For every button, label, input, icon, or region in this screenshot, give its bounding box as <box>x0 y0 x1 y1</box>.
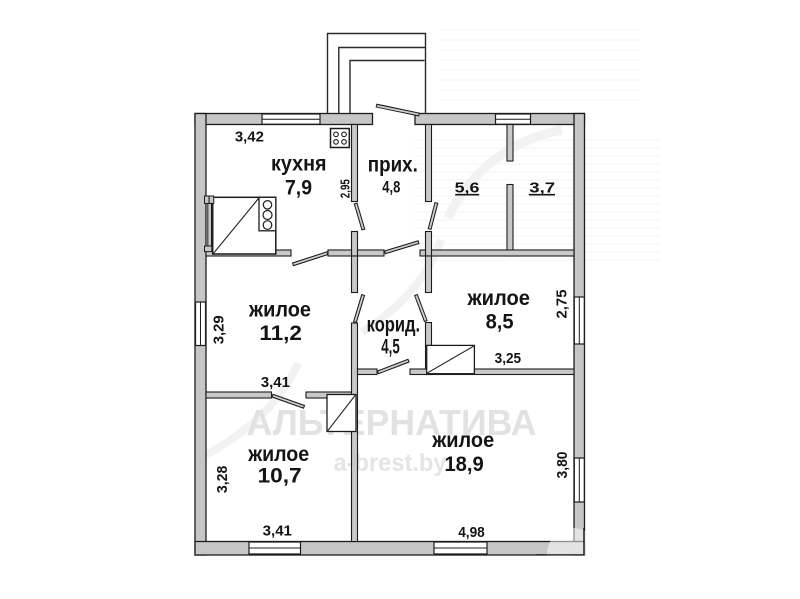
svg-text:8,5: 8,5 <box>486 309 514 333</box>
svg-text:жилое: жилое <box>467 286 530 310</box>
svg-text:7,9: 7,9 <box>285 176 312 200</box>
svg-text:жилое: жилое <box>431 428 494 452</box>
svg-text:корид.: корид. <box>367 312 421 336</box>
svg-text:2,95: 2,95 <box>337 179 352 198</box>
svg-text:3,28: 3,28 <box>215 466 231 494</box>
svg-text:4,5: 4,5 <box>381 335 400 359</box>
svg-text:3,7: 3,7 <box>529 179 555 196</box>
svg-text:3,29: 3,29 <box>212 315 228 344</box>
svg-text:a-brest.by: a-brest.by <box>334 449 447 477</box>
svg-text:11,2: 11,2 <box>259 321 302 345</box>
svg-text:прих.: прих. <box>368 153 418 177</box>
svg-text:3,80: 3,80 <box>555 452 571 479</box>
svg-text:3,25: 3,25 <box>495 351 522 367</box>
svg-text:10,7: 10,7 <box>258 463 302 487</box>
svg-text:4,8: 4,8 <box>382 177 400 196</box>
svg-text:4,98: 4,98 <box>458 525 485 541</box>
svg-text:кухня: кухня <box>271 151 327 175</box>
svg-text:18,9: 18,9 <box>444 452 483 476</box>
svg-text:жилое: жилое <box>248 298 311 322</box>
svg-text:3,41: 3,41 <box>261 375 290 391</box>
svg-text:5,6: 5,6 <box>455 179 480 196</box>
svg-text:2,75: 2,75 <box>554 290 570 319</box>
svg-text:3,41: 3,41 <box>263 523 292 539</box>
svg-text:3,42: 3,42 <box>235 129 264 145</box>
